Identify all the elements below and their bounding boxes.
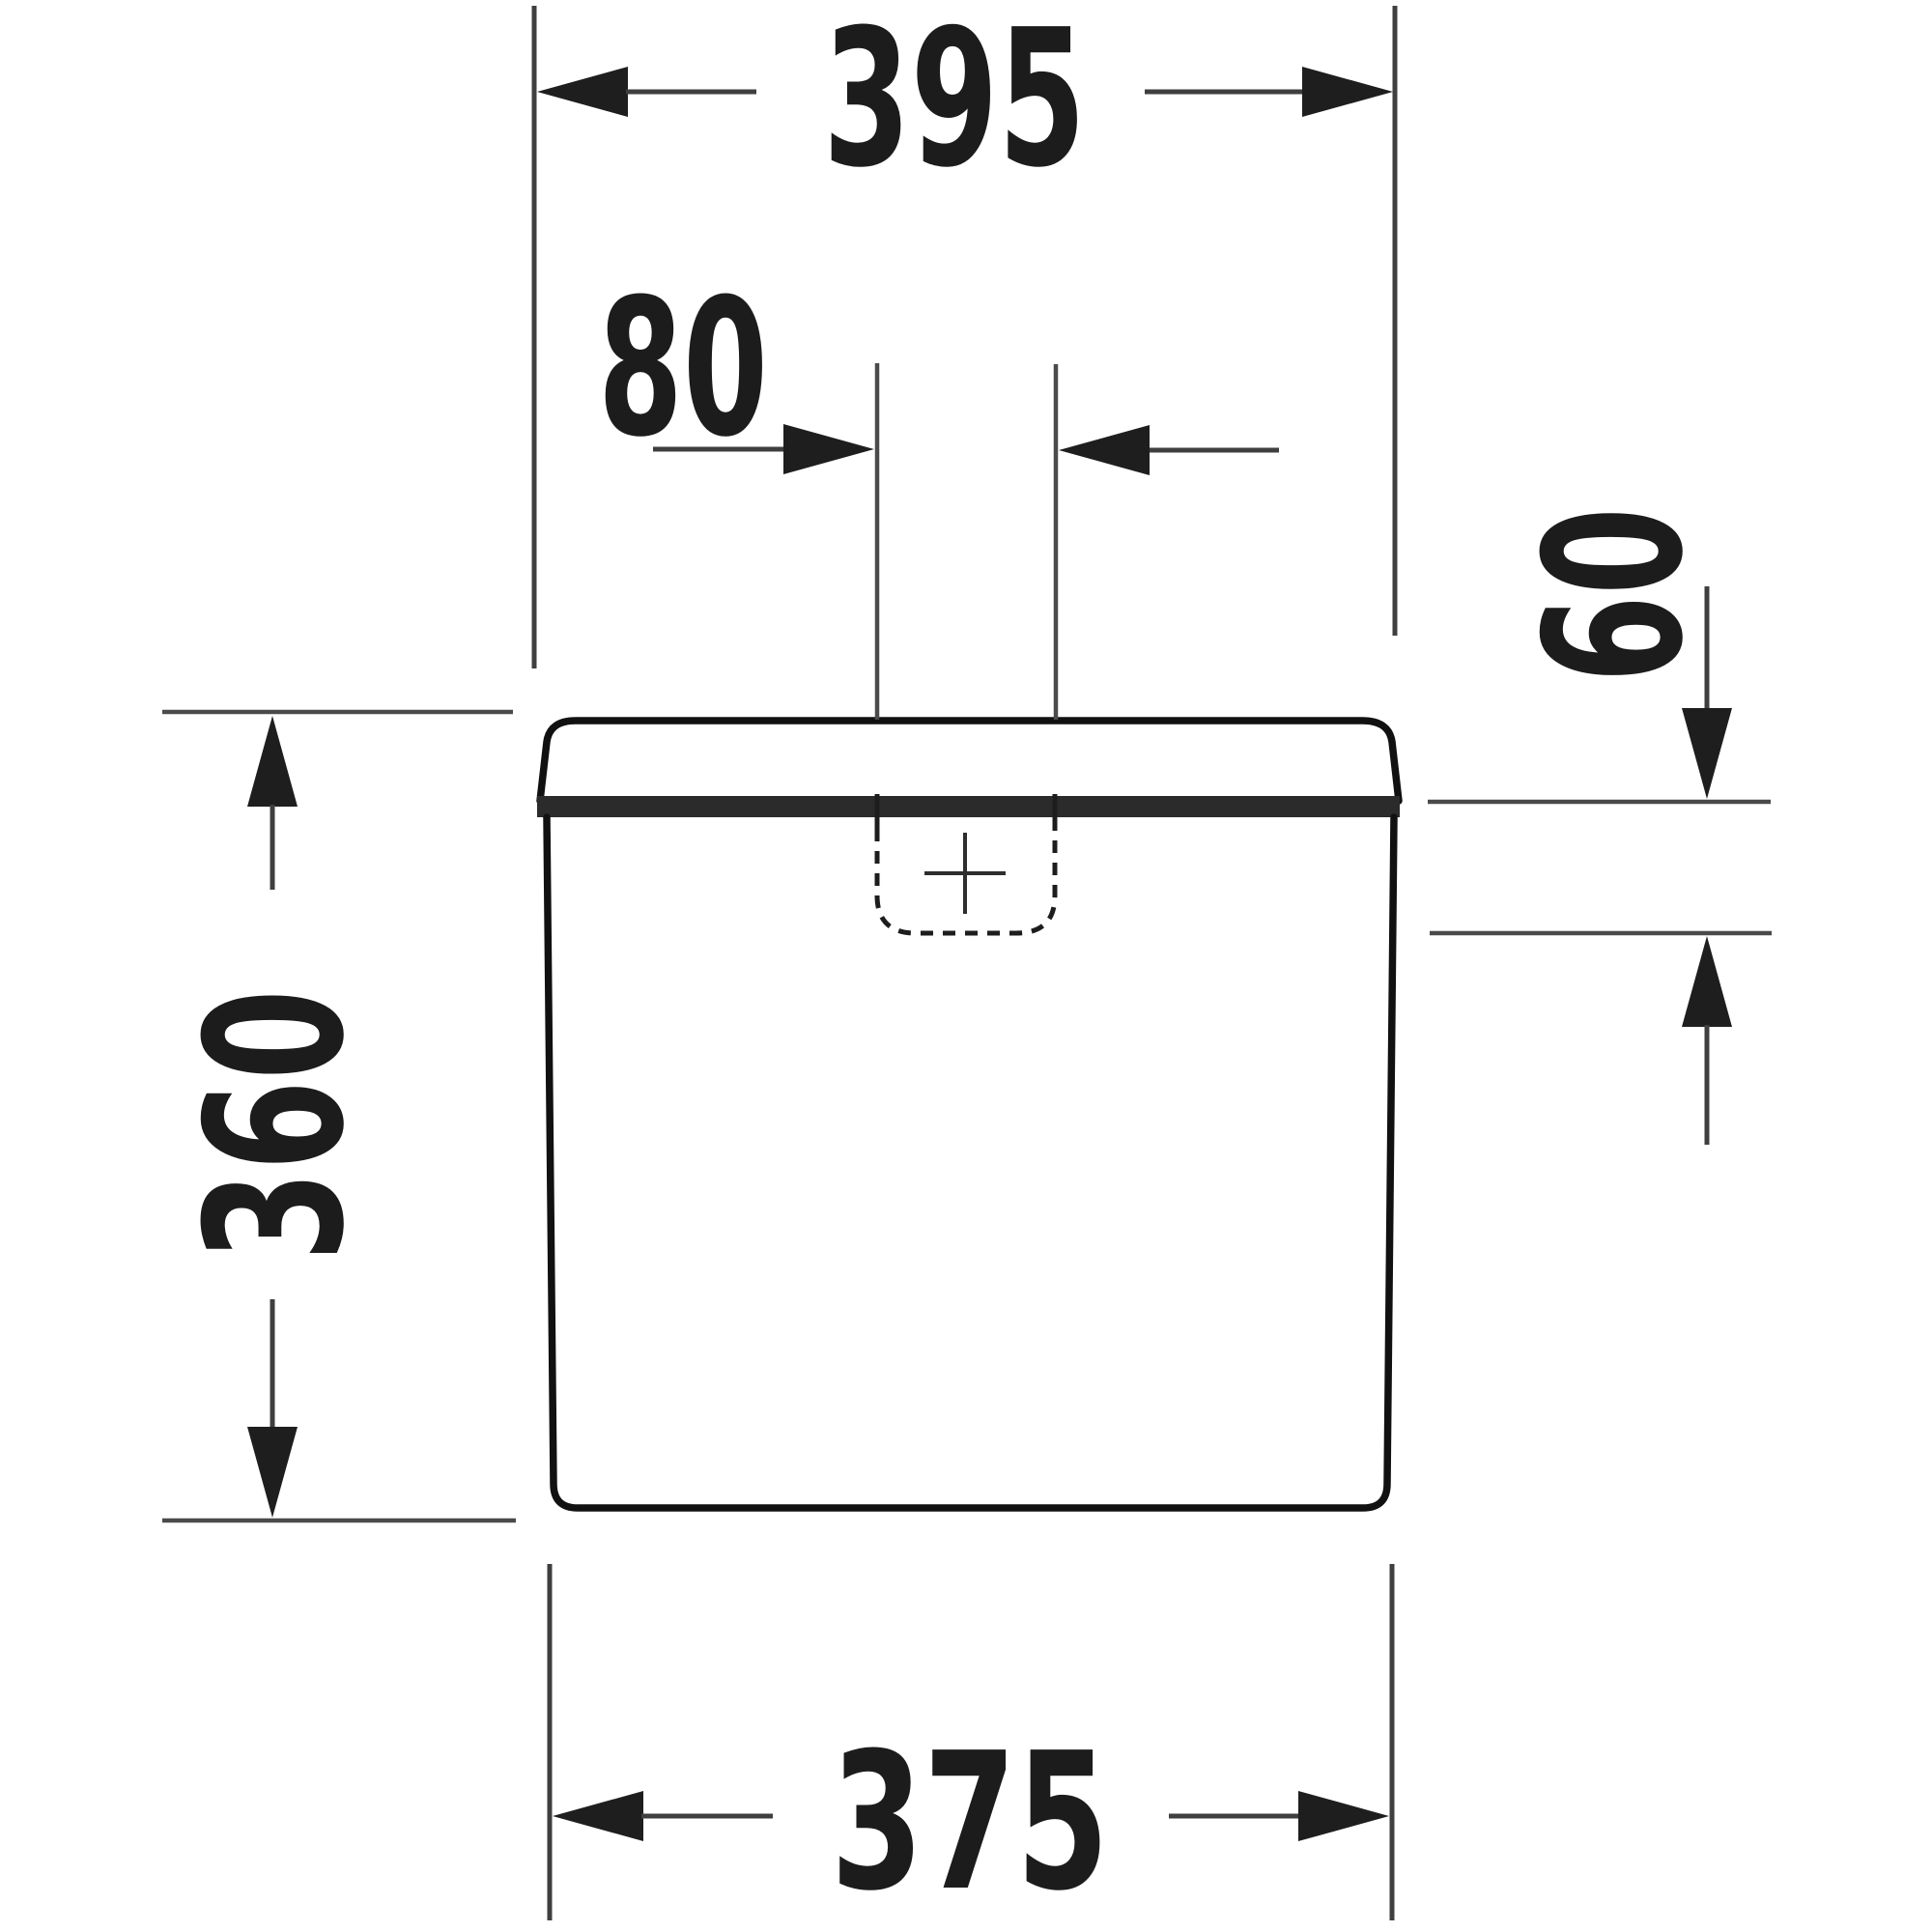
dimension-label-lid-height: 60	[1505, 507, 1725, 683]
cistern-body	[547, 817, 1394, 1508]
dimension-label-cutout-width: 80	[598, 259, 768, 479]
arrowhead-pointing-up	[1682, 936, 1732, 1027]
arrowhead-pointing-down	[247, 1427, 298, 1518]
arrowhead-pointing-down	[1682, 708, 1732, 799]
dimension-label-top-width: 395	[823, 0, 1086, 210]
center-cross-marker	[924, 833, 1006, 914]
arrowhead-pointing-up	[247, 716, 298, 807]
arrowhead-right	[1302, 67, 1393, 117]
arrowhead-right	[1298, 1791, 1389, 1841]
arrowhead-left	[553, 1791, 643, 1841]
dimension-cutout-width: 80	[598, 259, 1279, 720]
arrowhead-pointing-left	[1059, 425, 1150, 475]
cistern-dimension-drawing: 395 80 60 360 375	[0, 0, 1932, 1932]
technical-drawing-page: 395 80 60 360 375	[0, 0, 1932, 1932]
dimension-label-bottom-width: 375	[831, 1713, 1109, 1932]
cistern-lid	[540, 721, 1399, 801]
dimension-bottom-width: 375	[550, 1564, 1392, 1932]
dimension-label-tank-height: 360	[166, 989, 386, 1262]
arrowhead-pointing-right	[783, 424, 874, 474]
lid-seam-band	[537, 796, 1400, 817]
dimension-tank-height: 360	[162, 712, 516, 1520]
dimension-lid-height: 60	[1428, 507, 1772, 1145]
arrowhead-left	[537, 67, 628, 117]
cistern-outline	[537, 721, 1400, 1508]
